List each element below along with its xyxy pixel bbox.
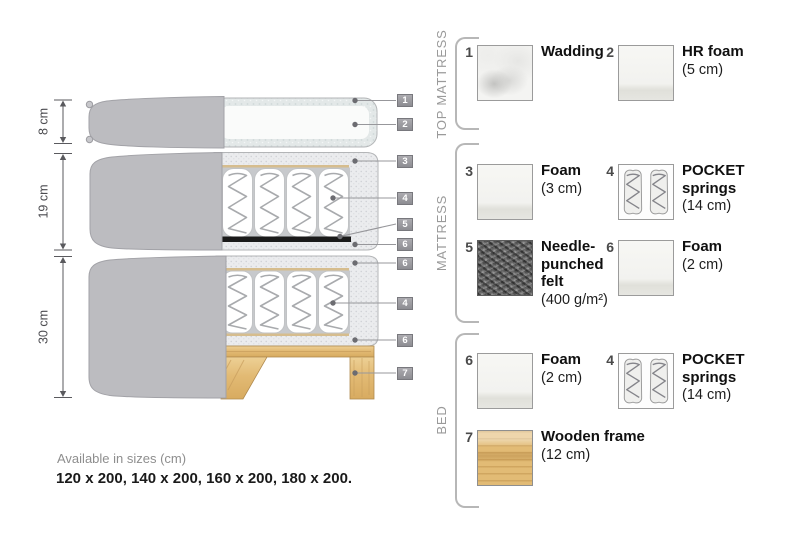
callout-badge-4: 4 [397,192,413,205]
wooden-frame-swatch [477,430,533,486]
dimension-label-19cm: 19 cm [36,184,50,218]
legend-label-foam2: Foam (2 cm) [682,238,794,274]
legend-num-foam3: 3 [455,163,473,179]
wooden-frame [220,346,374,399]
top-mattress-section [86,97,377,149]
available-sizes-values: 120 x 200, 140 x 200, 160 x 200, 180 x 2… [56,470,352,487]
available-sizes-title: Available in sizes (cm) [57,451,186,466]
legend-num-felt: 5 [455,239,473,255]
bed-section [89,256,378,399]
callout-badge-5: 5 [397,218,413,231]
legend-label-bed-springs: POCKET springs (14 cm) [682,351,794,404]
callout-badge-7: 7 [397,367,413,380]
felt-swatch [477,240,533,296]
callout-badge-4b: 4 [397,297,413,310]
callout-badge-3: 3 [397,155,413,168]
legend-label-hr-foam: HR foam (5 cm) [682,43,794,79]
section-title-mattress: MATTRESS [431,173,451,293]
legend-num-wooden-frame: 7 [455,429,473,445]
hr-foam-swatch [618,45,674,101]
legend-num-pocket-springs: 4 [596,163,614,179]
pocket-springs-swatch [618,164,674,220]
dimension-label-8cm: 8 cm [36,108,50,135]
callout-badge-6: 6 [397,238,413,251]
callout-badge-2: 2 [397,118,413,131]
bed-foam-swatch [477,353,533,409]
foam3-swatch [477,164,533,220]
bed-cross-section-diagram: 8 cm 19 cm 30 cm [0,0,430,430]
pocket-springs-icon [619,165,673,219]
dimension-label-30cm: 30 cm [36,310,50,344]
legend-num-wadding: 1 [455,44,473,60]
wadding-swatch [477,45,533,101]
callout-badge-6b: 6 [397,257,413,270]
bed-pocket-springs-swatch [618,353,674,409]
legend-label-wooden-frame: Wooden frame (12 cm) [541,428,701,464]
legend-num-bed-springs: 4 [596,352,614,368]
callout-badge-6c: 6 [397,334,413,347]
section-title-top-mattress: TOP MATTRESS [431,24,451,144]
legend-num-foam2: 6 [596,239,614,255]
legend-num-hr-foam: 2 [596,44,614,60]
mattress-section [90,153,378,251]
foam2-swatch [618,240,674,296]
section-title-bed: BED [431,360,451,480]
callout-badge-1: 1 [397,94,413,107]
pocket-springs-icon [619,354,673,408]
dimension-markers [54,100,72,398]
legend-num-bed-foam: 6 [455,352,473,368]
bed-construction-infographic: 8 cm 19 cm 30 cm [0,0,800,533]
legend-label-pocket-springs: POCKET springs (14 cm) [682,162,794,215]
